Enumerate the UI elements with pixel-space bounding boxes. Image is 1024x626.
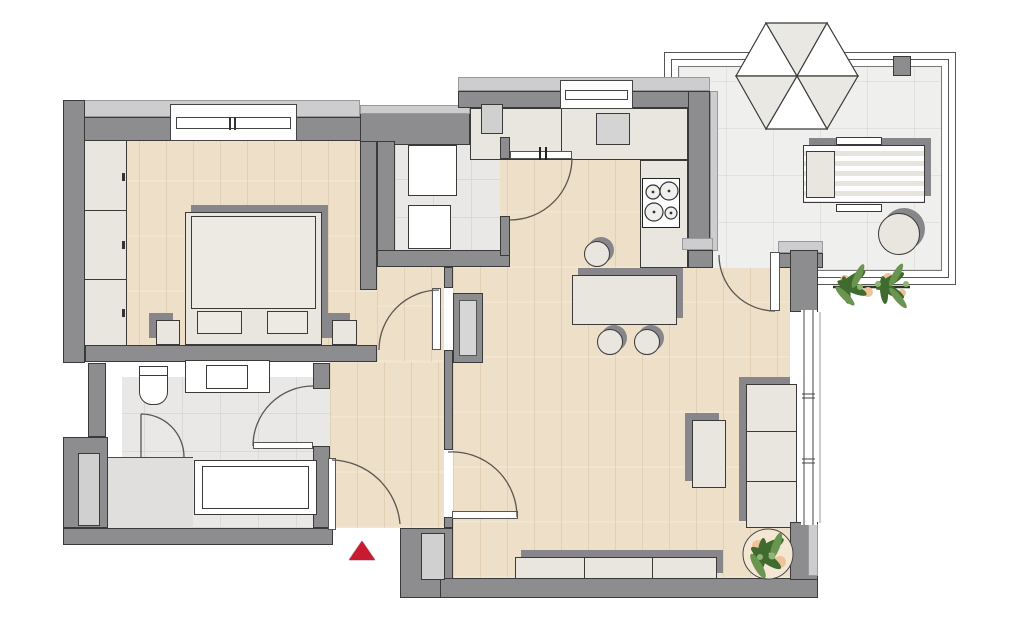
overlay-graphics bbox=[0, 0, 1024, 626]
parasol bbox=[736, 23, 858, 129]
entrance-door-arc bbox=[332, 460, 400, 524]
living-door-arc bbox=[448, 452, 517, 517]
shower-door-arc bbox=[141, 414, 184, 457]
floor-plan bbox=[0, 0, 1024, 626]
right-window-glazing bbox=[802, 310, 820, 525]
cooktop-burners bbox=[645, 182, 678, 221]
utility-door-arc bbox=[510, 158, 572, 220]
terrace-door-arc bbox=[719, 255, 775, 311]
counter-tick bbox=[540, 147, 546, 160]
bathroom-door-arc bbox=[253, 386, 313, 446]
bedroom-door-arc bbox=[379, 290, 439, 350]
door-arcs bbox=[141, 158, 775, 524]
living-room-plant bbox=[743, 529, 793, 580]
terrace-planter-plants bbox=[833, 262, 910, 310]
